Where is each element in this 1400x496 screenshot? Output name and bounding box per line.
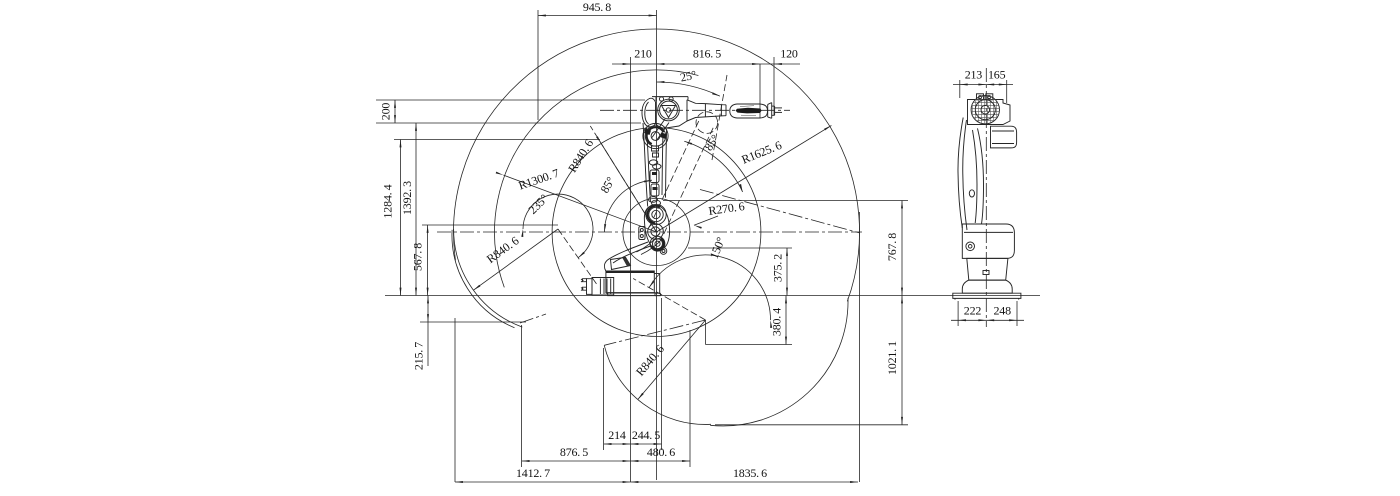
svg-text:214: 214 bbox=[608, 428, 626, 442]
svg-text:248: 248 bbox=[993, 304, 1011, 318]
svg-text:R1625. 6: R1625. 6 bbox=[739, 138, 783, 167]
svg-text:244. 5: 244. 5 bbox=[632, 428, 660, 442]
svg-text:200: 200 bbox=[379, 103, 393, 121]
svg-text:235°: 235° bbox=[525, 191, 551, 217]
svg-text:945. 8: 945. 8 bbox=[583, 0, 611, 14]
svg-text:150°: 150° bbox=[707, 235, 728, 261]
svg-text:1284. 4: 1284. 4 bbox=[381, 184, 395, 218]
svg-text:876. 5: 876. 5 bbox=[560, 445, 588, 459]
svg-text:222: 222 bbox=[964, 304, 982, 318]
svg-text:1392. 3: 1392. 3 bbox=[400, 181, 414, 215]
svg-text:R270. 6: R270. 6 bbox=[708, 199, 746, 218]
svg-text:210: 210 bbox=[634, 47, 652, 61]
svg-text:120: 120 bbox=[780, 47, 798, 61]
svg-text:85°: 85° bbox=[597, 174, 617, 195]
svg-text:1412. 7: 1412. 7 bbox=[516, 466, 550, 480]
svg-text:1021. 1: 1021. 1 bbox=[885, 341, 899, 375]
svg-text:25°: 25° bbox=[679, 67, 698, 84]
svg-text:213: 213 bbox=[965, 68, 983, 82]
svg-text:380. 4: 380. 4 bbox=[770, 308, 784, 336]
svg-text:375. 2: 375. 2 bbox=[771, 254, 785, 282]
svg-text:767. 8: 767. 8 bbox=[885, 233, 899, 261]
svg-text:1835. 6: 1835. 6 bbox=[733, 466, 767, 480]
svg-text:816. 5: 816. 5 bbox=[693, 47, 721, 61]
svg-text:480. 6: 480. 6 bbox=[647, 445, 675, 459]
svg-text:R840. 6: R840. 6 bbox=[484, 233, 522, 266]
svg-text:567. 8: 567. 8 bbox=[411, 243, 425, 271]
svg-text:215. 7: 215. 7 bbox=[412, 342, 426, 370]
svg-text:165: 165 bbox=[988, 68, 1006, 82]
svg-text:R840. 6: R840. 6 bbox=[565, 137, 596, 175]
